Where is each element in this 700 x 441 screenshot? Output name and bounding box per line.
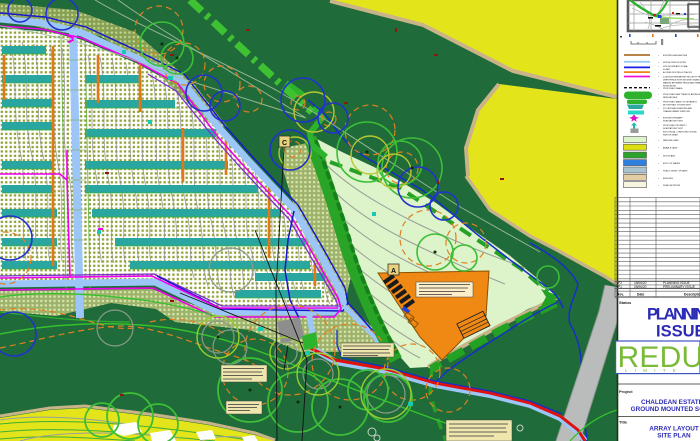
svg-text:PLANNING: PLANNING <box>647 306 700 324</box>
svg-text:SWITCH GEAR: SWITCH GEAR <box>663 134 678 137</box>
svg-text:EXISTING PRIMARY: EXISTING PRIMARY <box>663 117 683 120</box>
svg-text:CHALDEAN ESTATE: CHALDEAN ESTATE <box>641 399 700 406</box>
svg-text:GROUND MOUNTED SOLAR: GROUND MOUNTED SOLAR <box>631 406 700 413</box>
svg-text:BUILDING: BUILDING <box>663 178 673 180</box>
svg-text:EXISTING HEDGEROWS: EXISTING HEDGEROWS <box>663 55 688 57</box>
svg-text:ARABLE LAND: ARABLE LAND <box>663 147 678 150</box>
svg-text:Project: Project <box>619 389 633 394</box>
svg-text:SITE BOUNDARY 20.3HA: SITE BOUNDARY 20.3HA <box>663 65 688 68</box>
svg-text:NEW HEDGES: NEW HEDGES <box>663 97 678 99</box>
svg-text:IN PORTRAIT 4 ROWS HIGH: IN PORTRAIT 4 ROWS HIGH <box>663 104 691 107</box>
svg-text:PROPOSED NEW TREES PLANTING A: PROPOSED NEW TREES PLANTING A <box>663 93 700 96</box>
svg-text:ELECTRICAL COMPOUND HOUSE: ELECTRICAL COMPOUND HOUSE <box>663 131 697 134</box>
svg-text:SITE ACCESS ROUTES: SITE ACCESS ROUTES <box>663 61 686 64</box>
svg-text:C: C <box>282 140 287 147</box>
svg-text:WOODLAND: WOODLAND <box>663 155 676 158</box>
svg-text:DEER FENCE WITH 3M WIDE GRASS: DEER FENCE WITH 3M WIDE GRASS <box>663 79 700 82</box>
svg-text:PROPOSED SWALE: PROPOSED SWALE <box>663 87 683 90</box>
svg-text:TRANSFORMER STATIONS: TRANSFORMER STATIONS <box>663 110 690 113</box>
svg-text:MARGIN BETWEEN FENCE AND PANE: MARGIN BETWEEN FENCE AND PANE <box>663 82 700 85</box>
svg-text:Date: Date <box>637 292 644 296</box>
svg-text:SUBSTATION POINT: SUBSTATION POINT <box>663 120 684 123</box>
svg-text:SITE PLAN: SITE PLAN <box>657 433 691 440</box>
svg-text:ROAD NETWORK: ROAD NETWORK <box>663 184 681 187</box>
svg-text:50.2AC: 50.2AC <box>663 68 670 71</box>
svg-text:ARRAY LAYOUT: ARRAY LAYOUT <box>649 426 699 433</box>
svg-text:PROPOSED PROPERTY: PROPOSED PROPERTY <box>663 125 687 127</box>
svg-text:2.0M HIGH PERIMETER SECURITY F: 2.0M HIGH PERIMETER SECURITY FE <box>663 77 700 79</box>
svg-text:PROPOSED TABLE OF 28 PANELS: PROPOSED TABLE OF 28 PANELS <box>663 101 697 104</box>
svg-text:Rev.: Rev. <box>617 292 624 296</box>
svg-text:PRELIMINARY ISSUE: PRELIMINARY ISSUE <box>663 285 695 289</box>
svg-text:PUBLIC RIGHT OF WAYS: PUBLIC RIGHT OF WAYS <box>663 170 688 173</box>
svg-text:P1: P1 <box>618 285 622 289</box>
svg-text:A: A <box>391 268 396 275</box>
svg-text:SUBSTATION POINT: SUBSTATION POINT <box>663 127 684 130</box>
svg-text:09/06/20: 09/06/20 <box>634 285 647 289</box>
svg-text:Title: Title <box>619 420 628 425</box>
svg-text:Descriptio: Descriptio <box>684 292 700 296</box>
svg-text:LIMITE: LIMITE <box>625 368 683 373</box>
svg-text:BODY OF WATER: BODY OF WATER <box>663 162 681 165</box>
svg-text:PASTURE LAND: PASTURE LAND <box>663 139 679 142</box>
svg-text:ACCESS ROUTES & TRACKS: ACCESS ROUTES & TRACKS <box>663 71 692 74</box>
svg-text:Status: Status <box>619 300 632 305</box>
svg-text:ISSUE: ISSUE <box>656 323 700 341</box>
svg-text:PV CENTRAL INVERTER AND: PV CENTRAL INVERTER AND <box>663 107 692 110</box>
